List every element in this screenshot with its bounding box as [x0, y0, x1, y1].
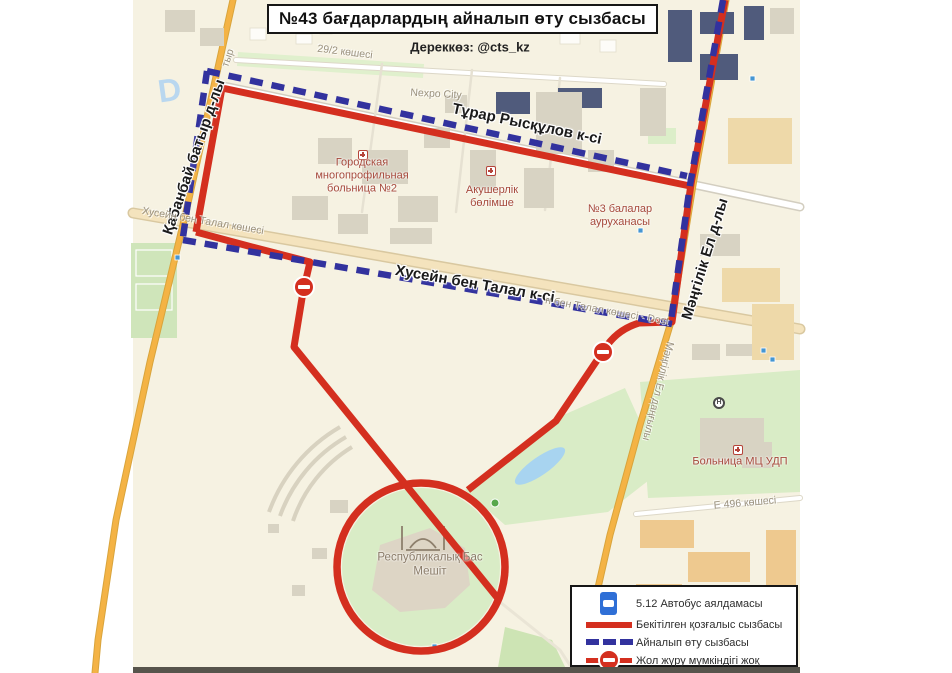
source-credit: Дереккөз: @cts_kz [410, 40, 530, 55]
legend-item-detour-route: Айналып өту сызбасы [636, 637, 749, 649]
detour-route-line-swatch [620, 639, 633, 645]
poi-label-udp-hospital: Больница МЦ УДП [692, 456, 787, 469]
poi-label-akusherlik: Акушерлік бөлімше [457, 184, 527, 210]
poi-label-children-hospital: №3 балалар ауруханасы [580, 203, 660, 229]
map-title: №43 бағдарлардың айналып өту сызбасы [267, 4, 658, 34]
water-d-glyph: D [156, 71, 184, 111]
legend-item-approved-route: Бекітілген қозғалыс сызбасы [636, 619, 782, 631]
bus-stop-sign-icon [600, 592, 617, 615]
approved-route-line-swatch [586, 622, 632, 628]
hospital-icon [733, 445, 743, 455]
detour-route-line-swatch [586, 639, 599, 645]
tree-marker [491, 499, 499, 507]
map-bottom-border [133, 667, 800, 673]
detour-route-line-swatch [603, 639, 616, 645]
no-entry-sign-west [293, 276, 315, 298]
poi-label-mosque: Республикалық Бас Мешіт [371, 551, 489, 578]
no-entry-sign-east [592, 341, 614, 363]
legend: 5.12 Автобус аялдамасы Бекітілген қозғал… [570, 585, 798, 667]
route-map-screenshot: D H Тұрар Рысқұлов к-сі Хусейн бен Талал… [0, 0, 952, 673]
hospital-icon [486, 166, 496, 176]
h-circle-marker: H [713, 397, 725, 409]
legend-item-bus-stop: 5.12 Автобус аялдамасы [636, 598, 763, 610]
legend-item-road-closed: Жол жүру мүмкіндігі жоқ [636, 655, 759, 667]
poi-label-hospital-2: Городская многопрофильная больница №2 [310, 157, 415, 196]
